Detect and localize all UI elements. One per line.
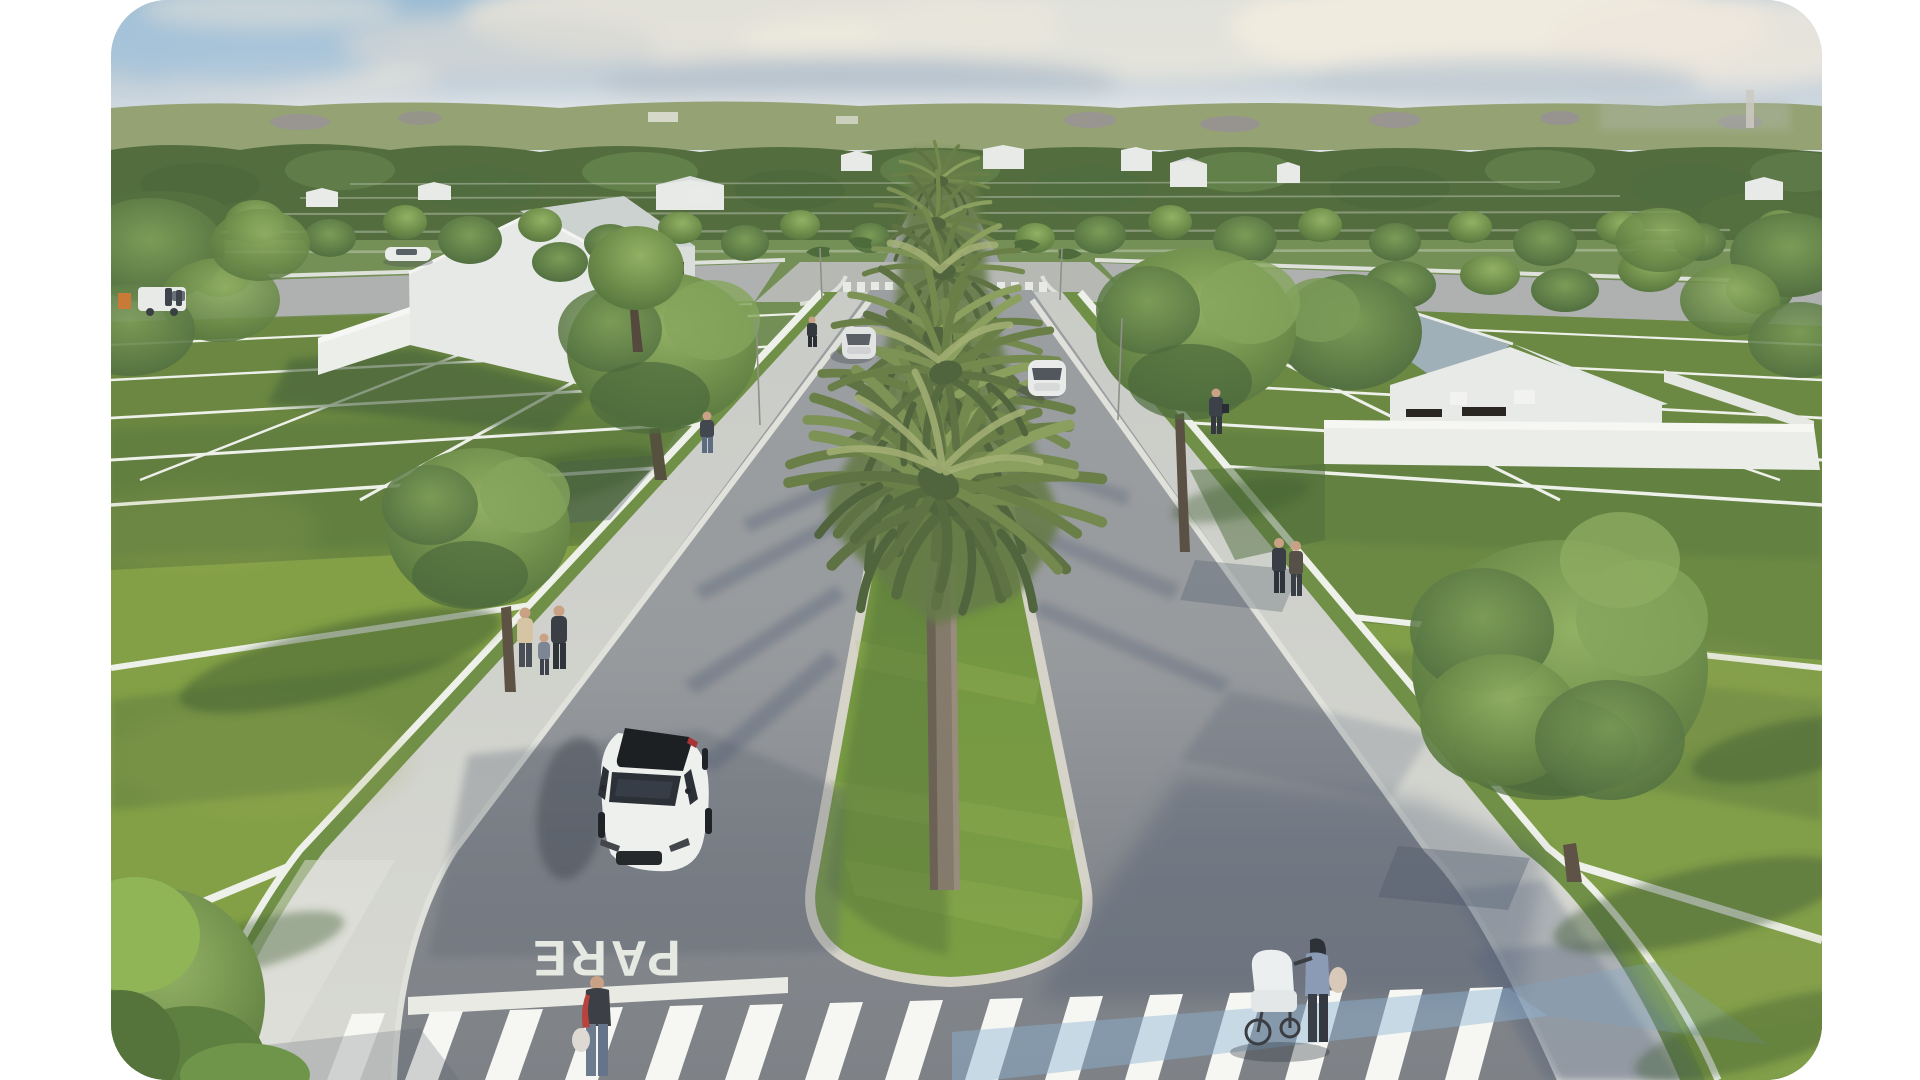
svg-text:PARE: PARE: [529, 930, 680, 986]
